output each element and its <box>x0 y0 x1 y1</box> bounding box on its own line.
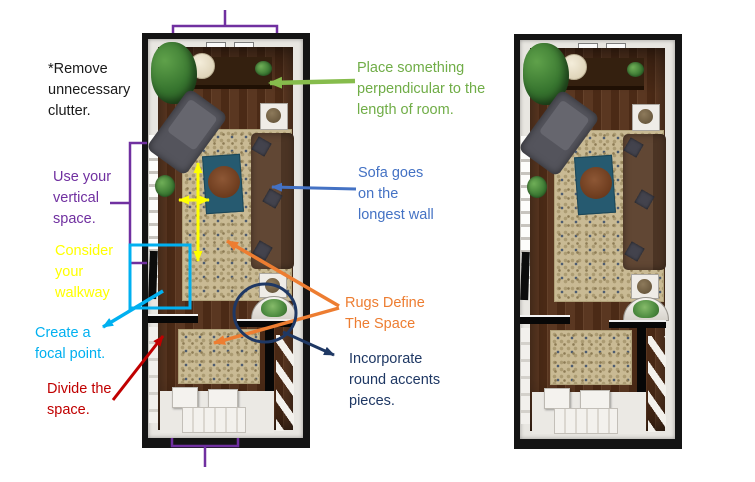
left-divider-shelf <box>148 314 198 323</box>
sofa <box>251 133 294 269</box>
sofa-pillow <box>624 241 644 261</box>
sofa <box>623 134 666 270</box>
note-vertical-space: Use your vertical space. <box>53 167 111 230</box>
interior-design-tips-slide: { "title_context": "annotated long narro… <box>0 0 755 482</box>
small-plant <box>255 61 272 76</box>
wall-tv <box>148 251 158 299</box>
bottom-rug <box>550 330 632 385</box>
white-cabinet <box>172 387 198 408</box>
white-bed <box>182 407 246 433</box>
note-remove-clutter: *Remove unnecessary clutter. <box>48 59 130 122</box>
round-accent-plant <box>633 300 659 318</box>
round-accent-plant <box>261 299 287 317</box>
white-bed <box>554 408 618 434</box>
top-bracket <box>173 10 277 33</box>
wood-floor <box>530 48 665 431</box>
round-ottoman <box>580 167 612 199</box>
sofa-pillow <box>634 189 654 209</box>
end-table <box>631 274 659 299</box>
basket <box>266 108 281 123</box>
note-rugs: Rugs Define The Space <box>345 293 425 335</box>
wood-floor <box>158 47 293 430</box>
ladder-shelf <box>276 335 294 431</box>
basket <box>265 278 280 293</box>
sofa-pillow <box>251 136 271 156</box>
bottom-rug <box>178 329 260 384</box>
sofa-pillow <box>623 137 643 157</box>
ladder-shelf <box>648 336 666 432</box>
note-divide-space: Divide the space. <box>47 379 111 421</box>
basket <box>637 279 652 294</box>
note-walkway: Consider your walkway <box>55 241 113 304</box>
small-plant <box>627 62 644 77</box>
sofa-pillow <box>252 240 272 260</box>
end-table <box>259 273 287 298</box>
note-sofa-wall: Sofa goes on the longest wall <box>358 163 434 226</box>
floor-plan-annotated <box>142 33 310 448</box>
shelf-plant <box>527 176 547 198</box>
end-table <box>260 103 288 130</box>
sofa-pillow <box>262 188 282 208</box>
room-walls <box>148 39 303 438</box>
shelf-plant <box>155 175 175 197</box>
floor-plan-clean <box>514 34 682 449</box>
basket <box>638 109 653 124</box>
note-focal-point: Create a focal point. <box>35 323 105 365</box>
white-cabinet <box>544 388 570 409</box>
note-perpendicular: Place something perpendicular to the len… <box>357 58 485 121</box>
end-table <box>632 104 660 131</box>
room-walls <box>520 40 675 439</box>
wall-tv <box>520 252 530 300</box>
round-ottoman <box>208 166 240 198</box>
left-divider-shelf <box>520 315 570 324</box>
note-round-accents: Incorporate round accents pieces. <box>349 349 440 412</box>
